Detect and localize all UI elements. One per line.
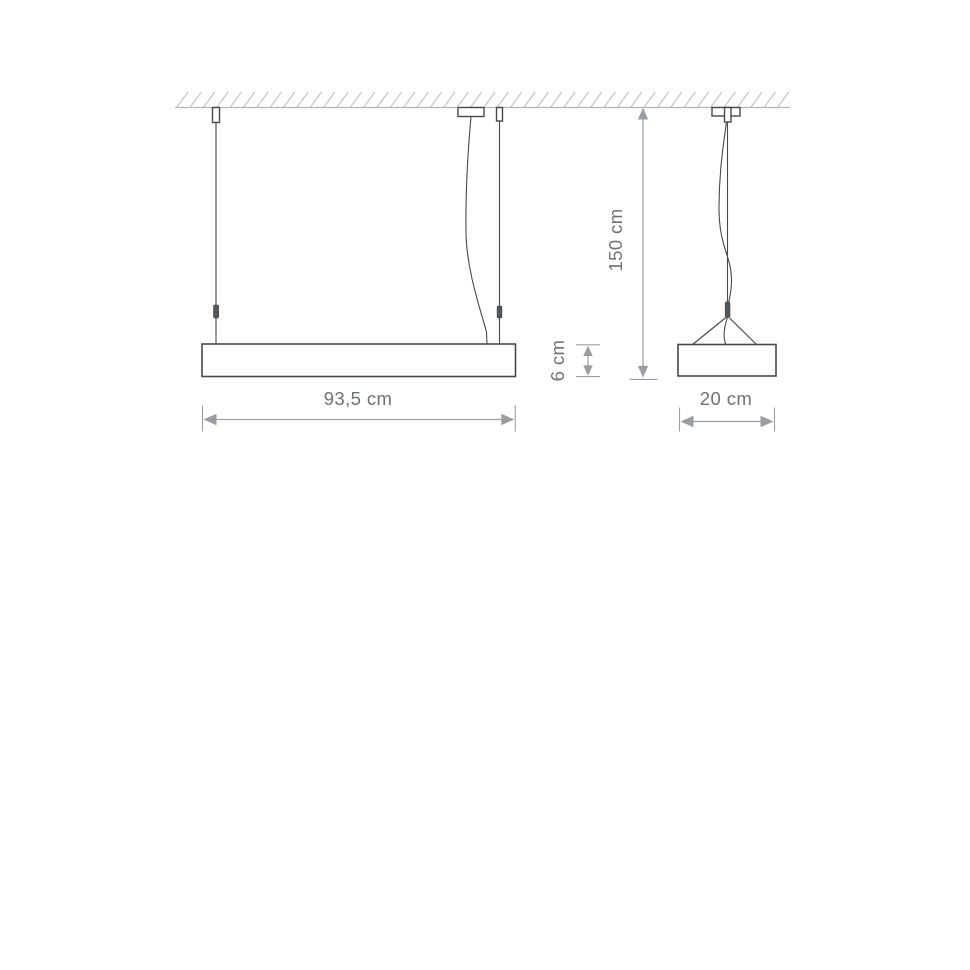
side-wire-adjuster bbox=[725, 302, 730, 317]
hatch-line bbox=[177, 92, 188, 107]
suspension-dim-label: 150 cm bbox=[605, 208, 626, 271]
dimension-suspension bbox=[630, 108, 658, 380]
hatch-line bbox=[497, 92, 508, 107]
height-dim-label: 6 cm bbox=[547, 340, 568, 382]
side-cord-tail bbox=[724, 317, 727, 345]
ceiling-hatching bbox=[177, 92, 789, 107]
power-cord bbox=[466, 117, 487, 345]
hatch-line bbox=[644, 92, 655, 107]
hatch-line bbox=[337, 92, 348, 107]
width-dim-arrow-right bbox=[501, 414, 514, 426]
right-wire-adjuster bbox=[497, 306, 502, 318]
hatch-line bbox=[551, 92, 562, 107]
hatch-line bbox=[471, 92, 482, 107]
hatch-line bbox=[364, 92, 375, 107]
hatch-line bbox=[204, 92, 215, 107]
height-dim-arrow-up bbox=[583, 346, 593, 356]
height-dim-arrow-down bbox=[583, 365, 593, 375]
hatch-line bbox=[457, 92, 468, 107]
width-dim-arrow-left bbox=[204, 414, 217, 426]
hatch-line bbox=[444, 92, 455, 107]
side-power-cord bbox=[719, 122, 732, 303]
hatch-line bbox=[404, 92, 415, 107]
depth-dim-arrow-left bbox=[681, 416, 694, 428]
hatch-line bbox=[684, 92, 695, 107]
hatch-line bbox=[724, 92, 735, 107]
hatch-line bbox=[511, 92, 522, 107]
hatch-line bbox=[391, 92, 402, 107]
hatch-line bbox=[190, 92, 201, 107]
hatch-line bbox=[591, 92, 602, 107]
hatch-line bbox=[658, 92, 669, 107]
hatch-line bbox=[524, 92, 535, 107]
hatch-line bbox=[751, 92, 762, 107]
hatch-line bbox=[324, 92, 335, 107]
lamp-body-side bbox=[678, 345, 776, 377]
hatch-line bbox=[764, 92, 775, 107]
hatch-line bbox=[564, 92, 575, 107]
depth-dim-label: 20 cm bbox=[700, 388, 752, 409]
suspension-dim-arrow-up bbox=[638, 108, 648, 120]
hatch-line bbox=[377, 92, 388, 107]
width-dim-label: 93,5 cm bbox=[324, 388, 393, 409]
lamp-dimension-diagram: 93,5 cm 20 cm 6 cm 150 cm bbox=[0, 0, 970, 970]
dimension-depth bbox=[680, 408, 775, 432]
hatch-line bbox=[284, 92, 295, 107]
suspension-dim-arrow-down bbox=[638, 366, 648, 378]
hatch-line bbox=[431, 92, 442, 107]
hatch-line bbox=[778, 92, 789, 107]
hatch-line bbox=[537, 92, 548, 107]
hatch-line bbox=[618, 92, 629, 107]
hatch-line bbox=[311, 92, 322, 107]
hatch-line bbox=[671, 92, 682, 107]
power-canopy bbox=[458, 108, 484, 117]
left-suspension-mount bbox=[213, 108, 220, 123]
hatch-line bbox=[631, 92, 642, 107]
hatch-line bbox=[484, 92, 495, 107]
hatch-line bbox=[698, 92, 709, 107]
hatch-line bbox=[351, 92, 362, 107]
hatch-line bbox=[257, 92, 268, 107]
hatch-line bbox=[417, 92, 428, 107]
hatch-line bbox=[230, 92, 241, 107]
hatch-line bbox=[297, 92, 308, 107]
hatch-line bbox=[738, 92, 749, 107]
hatch-line bbox=[244, 92, 255, 107]
front-view bbox=[202, 108, 516, 377]
hatch-line bbox=[578, 92, 589, 107]
hatch-line bbox=[604, 92, 615, 107]
left-wire-adjuster bbox=[214, 305, 219, 318]
lamp-body-front bbox=[202, 344, 516, 377]
hatch-line bbox=[270, 92, 281, 107]
hatch-line bbox=[711, 92, 722, 107]
suspension-triangle-left bbox=[692, 317, 727, 345]
diagram-svg: 93,5 cm 20 cm 6 cm 150 cm bbox=[0, 0, 970, 970]
right-suspension-mount bbox=[497, 108, 503, 122]
suspension-triangle-right bbox=[729, 317, 758, 345]
side-view bbox=[678, 108, 776, 377]
dimension-lines bbox=[203, 108, 775, 432]
dimension-width bbox=[203, 406, 516, 432]
side-canopy-stem bbox=[725, 108, 732, 123]
dimension-height bbox=[576, 345, 600, 377]
hatch-line bbox=[217, 92, 228, 107]
depth-dim-arrow-right bbox=[761, 416, 774, 428]
